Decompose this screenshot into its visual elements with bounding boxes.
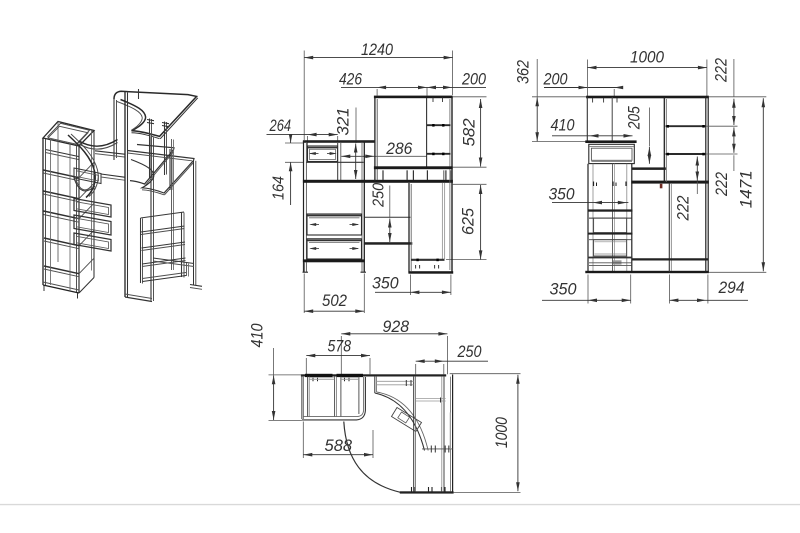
svg-text:410: 410 xyxy=(551,115,575,134)
svg-text:286: 286 xyxy=(385,139,412,158)
svg-text:350: 350 xyxy=(550,280,578,299)
svg-text:294: 294 xyxy=(718,278,745,297)
svg-text:1240: 1240 xyxy=(361,40,393,59)
svg-text:426: 426 xyxy=(339,69,362,88)
svg-text:410: 410 xyxy=(248,323,267,347)
svg-text:222: 222 xyxy=(712,172,731,197)
svg-text:200: 200 xyxy=(461,69,486,88)
svg-text:1000: 1000 xyxy=(630,47,664,66)
svg-text:205: 205 xyxy=(625,106,644,130)
svg-text:164: 164 xyxy=(271,176,288,200)
svg-text:250: 250 xyxy=(371,183,388,208)
svg-text:362: 362 xyxy=(514,60,533,84)
svg-text:250: 250 xyxy=(457,342,482,361)
svg-text:625: 625 xyxy=(459,207,478,235)
svg-text:1471: 1471 xyxy=(737,170,756,208)
svg-text:1000: 1000 xyxy=(492,417,511,448)
svg-text:222: 222 xyxy=(674,195,693,221)
svg-text:928: 928 xyxy=(383,317,410,336)
svg-text:350: 350 xyxy=(372,274,399,293)
svg-text:222: 222 xyxy=(712,58,731,83)
svg-text:502: 502 xyxy=(322,291,347,310)
svg-text:350: 350 xyxy=(549,185,575,204)
svg-text:264: 264 xyxy=(269,116,291,135)
svg-text:321: 321 xyxy=(334,108,353,136)
svg-text:578: 578 xyxy=(328,336,352,355)
svg-text:582: 582 xyxy=(460,118,479,147)
svg-text:200: 200 xyxy=(543,69,568,88)
